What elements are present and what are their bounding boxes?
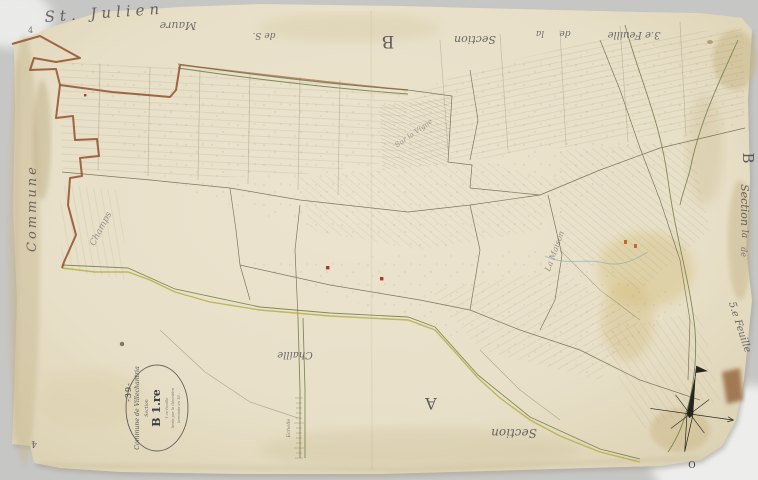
compass-south-letter: O [688, 461, 695, 471]
corner-number-top-left: 4 [28, 26, 33, 35]
right-margin-la: la [739, 230, 749, 238]
section-a-word: Section [491, 426, 537, 440]
top-inverted-la: la [536, 28, 544, 38]
top-inverted-feuille: 3.e Feuille [607, 29, 660, 40]
right-margin-b: B [739, 152, 757, 163]
corner-number-bottom-left: 4 [31, 438, 37, 448]
scanned-cadastral-map-page: Echelle O Commune de Villechantria Secti… [0, 0, 758, 480]
right-margin-de: de [739, 247, 748, 257]
right-margin-section: Section [738, 184, 751, 226]
cadastral-map-svg: Echelle O Commune de Villechantria Secti… [0, 0, 758, 480]
top-inverted-de: de [559, 28, 570, 38]
top-inverted-b: B [382, 31, 395, 51]
cartouche-section-id: B 1.re [150, 389, 163, 426]
top-inverted-section: Section [454, 33, 496, 46]
chaille-label: Chaille [277, 349, 313, 360]
cartouche-title: Commune de Villechantria [134, 366, 141, 450]
top-inverted-de-s: de S. [253, 30, 276, 40]
cartouche-small-line-2: levée par le Géomètre [171, 388, 175, 428]
left-margin-commune: Commune [25, 164, 40, 252]
cartouche-small-line-3: terminée en 18.. [177, 393, 181, 423]
top-inverted-maure: Maure [159, 19, 197, 32]
cartouche-small-line-1: 1.re Feuille [165, 398, 169, 419]
cartouche-number: -39- [124, 382, 133, 402]
scale-label: Echelle [286, 419, 292, 439]
section-a-letter: A [425, 394, 438, 413]
